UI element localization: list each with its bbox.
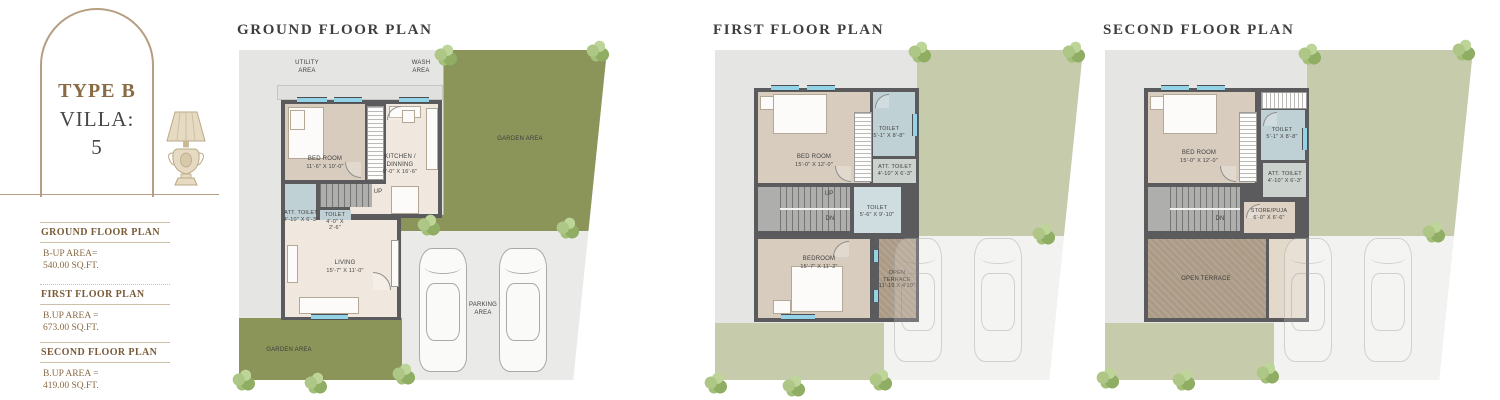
spec-ground-area-line2: 540.00 SQ.FT. [43, 260, 170, 272]
tree-icon [1451, 38, 1477, 64]
tree-icon [868, 368, 894, 394]
bedroom-window-2 [1197, 85, 1225, 91]
first-floor-plan-title: FIRST FLOOR PLAN [713, 22, 884, 39]
tree-icon [303, 371, 329, 397]
stair-treads [320, 184, 372, 207]
wardrobe [1239, 112, 1257, 182]
tree-icon [585, 39, 611, 65]
tree-icon [1031, 222, 1057, 248]
bedroom-label: BED ROOM15'-0" X 12'-0" [1159, 150, 1239, 165]
dining-table [391, 186, 419, 214]
tree-icon [1297, 42, 1323, 68]
living-window [311, 314, 348, 320]
garden-area-top [1307, 50, 1473, 236]
tree-icon [231, 368, 257, 394]
sidebar: TYPE B VILLA: 5 GROUND FLOOR PLAN B-UP A… [0, 0, 236, 400]
garden-area-bottom [715, 323, 884, 380]
bedroom2-label: BEDROOM15'-7" X 11'-2" [779, 256, 859, 271]
stair-rail [780, 208, 850, 210]
tree-icon [1421, 220, 1447, 246]
second-floor-plan-panel: SECOND FLOOR PLAN [1103, 0, 1475, 400]
balcony-hatch [1261, 92, 1307, 109]
villa-type-title: TYPE B [42, 80, 152, 103]
stairs-up-label: UP [368, 189, 388, 197]
stairs-dn [1148, 187, 1240, 231]
dresser [760, 96, 774, 110]
stairs-dn-label: DN [820, 216, 840, 224]
living-side-window [391, 240, 399, 287]
car-outline [419, 248, 467, 372]
spec-second-area-line2: 419.00 SQ.FT. [43, 380, 170, 392]
bedroom2-window [781, 314, 815, 320]
toilet-label: TOILET5'-1" X 8'-8" [1254, 127, 1310, 140]
spec-first-area-line1: B.UP AREA = [43, 310, 170, 322]
bedroom-window [297, 97, 327, 103]
spec-first-floor: FIRST FLOOR PLAN B.UP AREA = 673.00 SQ.F… [40, 284, 170, 334]
ground-floor-plan-panel: GROUND FLOOR PLAN [237, 0, 609, 400]
spec-first-title: FIRST FLOOR PLAN [40, 284, 170, 305]
second-floor-plan-title: SECOND FLOOR PLAN [1103, 22, 1294, 39]
tree-icon [907, 40, 933, 66]
bed [791, 266, 843, 312]
car-outline [894, 238, 942, 362]
stove [402, 110, 415, 123]
store-puja-label: STORE/PUJA6'-0" X 6'-6" [1241, 208, 1297, 221]
stairs-dn-label: DN [1210, 216, 1230, 224]
spec-first-area: B.UP AREA = 673.00 SQ.FT. [40, 305, 170, 334]
stair-rail [1170, 208, 1240, 210]
spec-ground-area-line1: B-UP AREA= [43, 248, 170, 260]
lamp-icon [158, 109, 214, 195]
bedroom-window [1161, 85, 1189, 91]
spec-first-area-line2: 673.00 SQ.FT. [43, 322, 170, 334]
spec-ground-title: GROUND FLOOR PLAN [40, 222, 170, 243]
bed [1163, 94, 1217, 134]
first-floor-plot: BED ROOM15'-0" X 12'-0" TOILET5'-1" X 8'… [715, 50, 1083, 380]
tree-icon [433, 43, 459, 69]
car-outline [1364, 238, 1412, 362]
car-outline [1284, 238, 1332, 362]
bedroom1-label: BED ROOM15'-0" X 12'-0" [774, 154, 854, 169]
tree-icon [703, 371, 729, 397]
garden-top-label: GARDEN AREA [470, 136, 570, 144]
garden-area-top [917, 50, 1083, 236]
spec-ground-floor: GROUND FLOOR PLAN B-UP AREA= 540.00 SQ.F… [40, 222, 170, 272]
stairs-up-label: UP [819, 191, 839, 199]
spec-second-title: SECOND FLOOR PLAN [40, 342, 170, 363]
side-table [773, 300, 791, 314]
garden-bottom-label: GARDEN AREA [249, 347, 329, 355]
kitchen-label: KITCHEN / DINNING9'-0" X 16'-6" [372, 154, 428, 177]
first-floor-plan-panel: FIRST FLOOR PLAN [713, 0, 1085, 400]
bedroom-window-2 [807, 85, 835, 91]
open-terrace-label: OPEN TERRACE [1156, 276, 1256, 284]
utility-area-label: UTILITYAREA [277, 60, 337, 75]
att-toilet-label: ATT. TOILET4'-10" X 6'-3" [867, 164, 923, 177]
tree-icon [555, 216, 581, 242]
terrace-opening-2 [873, 290, 879, 302]
tree-icon [1095, 366, 1121, 392]
spec-second-area-line1: B.UP AREA = [43, 368, 170, 380]
spec-ground-area: B-UP AREA= 540.00 SQ.FT. [40, 243, 170, 272]
car-outline [499, 248, 547, 372]
kitchen-window [399, 97, 429, 103]
toilet1-label: TOILET5'-1" X 8'-8" [861, 126, 917, 139]
shelf-line [0, 194, 219, 195]
spec-second-floor: SECOND FLOOR PLAN B.UP AREA = 419.00 SQ.… [40, 342, 170, 392]
terrace-opening [873, 250, 879, 262]
att-toilet-label: ATT. TOILET4'-10" X 6'-3" [1257, 171, 1313, 184]
bedroom-label: BED ROOM11'-6" X 10'-0" [285, 156, 365, 171]
stairs-up [320, 184, 372, 207]
villa-brochure-canvas: TYPE B VILLA: 5 GROUND FLOOR PLAN B-UP A… [0, 0, 1500, 400]
ground-floor-plan-title: GROUND FLOOR PLAN [237, 22, 433, 39]
villa-type-arch: TYPE B VILLA: 5 [40, 8, 154, 197]
sofa [299, 297, 359, 314]
villa-number: 5 [42, 136, 152, 159]
tree-icon [391, 362, 417, 388]
bedroom-window [771, 85, 799, 91]
tree-icon [781, 374, 807, 400]
bedroom-window-2 [334, 97, 362, 103]
tree-icon [416, 213, 442, 239]
dresser [1150, 96, 1164, 110]
tv-unit [287, 245, 298, 283]
living-label: LIVING15'-7" X 11'-0" [309, 260, 381, 275]
second-floor-plot: BED ROOM15'-0" X 12'-0" TOILET5'-1" X 8'… [1105, 50, 1473, 380]
tree-icon [1255, 361, 1281, 387]
bed-pillow [290, 110, 305, 130]
villa-label: VILLA: [42, 108, 152, 131]
tree-icon [1061, 40, 1087, 66]
bed [773, 94, 827, 134]
toilet2-label: TOILET5'-6" X 9'-10" [849, 205, 905, 218]
tree-icon [1171, 368, 1197, 394]
toilet-label: TOILET4'-0" X2'-6" [317, 212, 353, 232]
car-outline [974, 238, 1022, 362]
spec-second-area: B.UP AREA = 419.00 SQ.FT. [40, 363, 170, 392]
